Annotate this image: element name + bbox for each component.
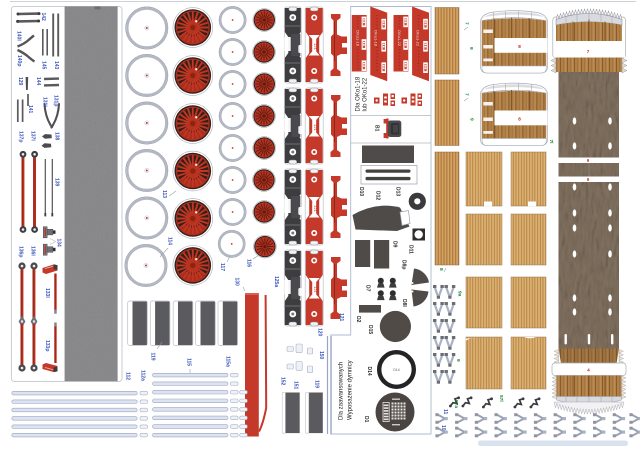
svg-text:D7: D7 [365,285,371,292]
svg-text:140l: 140l [16,31,22,41]
svg-text:Wyposażenie dymnicy: Wyposażenie dymnicy [348,360,354,420]
svg-text:D13: D13 [395,187,401,196]
svg-text:115a: 115a [225,356,231,367]
svg-text:D1: D1 [363,416,369,423]
svg-text:125a: 125a [273,276,279,287]
svg-text:OKo1-18: OKo1-18 [374,30,379,47]
svg-text:144: 144 [35,77,41,86]
svg-text:139: 139 [54,178,60,187]
svg-text:133l: 133l [44,288,50,298]
svg-text:117: 117 [219,263,225,271]
svg-text:B1: B1 [374,125,380,132]
svg-text:130: 130 [234,278,240,287]
svg-text:D10: D10 [358,187,364,196]
svg-text:140p: 140p [16,55,22,66]
svg-text:D11: D11 [408,245,414,254]
svg-text:137p: 137p [18,131,24,142]
svg-text:OKo1-18: OKo1-18 [356,30,361,47]
svg-text:136p: 136p [18,246,24,257]
svg-text:7: 7 [464,93,470,96]
svg-text:121: 121 [338,313,344,322]
svg-text:150: 150 [318,351,324,360]
svg-text:119: 119 [314,380,320,388]
svg-text:9: 9 [469,118,475,121]
svg-text:138: 138 [54,132,60,141]
svg-text:8: 8 [438,268,444,271]
svg-text:D14: D14 [393,368,399,372]
svg-text:119: 119 [150,353,156,361]
svg-text:115: 115 [186,358,192,366]
svg-text:137l: 137l [30,131,36,141]
svg-text:9: 9 [468,47,474,50]
svg-text:113: 113 [161,190,167,198]
svg-text:131l: 131l [42,97,48,107]
svg-text:116: 116 [246,259,252,267]
svg-text:131p: 131p [53,95,59,106]
svg-text:D9: D9 [392,241,398,248]
svg-text:7: 7 [464,22,470,25]
svg-text:D8p: D8p [401,260,407,269]
svg-text:112a: 112a [140,370,146,381]
svg-text:7: 7 [587,49,590,54]
svg-text:114: 114 [167,237,173,245]
svg-text:142: 142 [40,13,46,22]
svg-text:lub OKo1-22: lub OKo1-22 [363,77,369,111]
svg-text:57l: 57l [498,395,504,402]
svg-text:D2: D2 [355,316,361,323]
svg-text:136l: 136l [30,246,36,256]
svg-text:Dla OKo1-18: Dla OKo1-18 [356,76,362,111]
svg-text:Dla zaawansowanych: Dla zaawansowanych [339,362,345,420]
svg-text:129: 129 [17,77,23,86]
svg-text:112: 112 [125,372,131,380]
svg-text:OKo1-22: OKo1-22 [415,30,420,47]
svg-text:11: 11 [442,409,448,415]
svg-text:152: 152 [280,377,286,386]
svg-text:9: 9 [455,359,461,362]
svg-text:D15: D15 [367,325,373,334]
svg-text:D12: D12 [375,191,381,200]
svg-text:143: 143 [53,61,59,70]
svg-text:120: 120 [317,328,323,337]
svg-text:145: 145 [41,61,47,70]
svg-text:OKo1-22: OKo1-22 [397,30,402,47]
svg-text:D8l: D8l [401,299,407,307]
svg-text:141: 141 [27,105,33,114]
svg-text:133p: 133p [44,340,50,351]
svg-text:D14: D14 [366,367,372,376]
svg-text:7l: 7l [548,140,554,144]
svg-text:9a: 9a [457,291,463,297]
svg-text:134: 134 [56,239,62,248]
svg-text:57a: 57a [453,400,459,408]
svg-text:151: 151 [293,381,299,390]
